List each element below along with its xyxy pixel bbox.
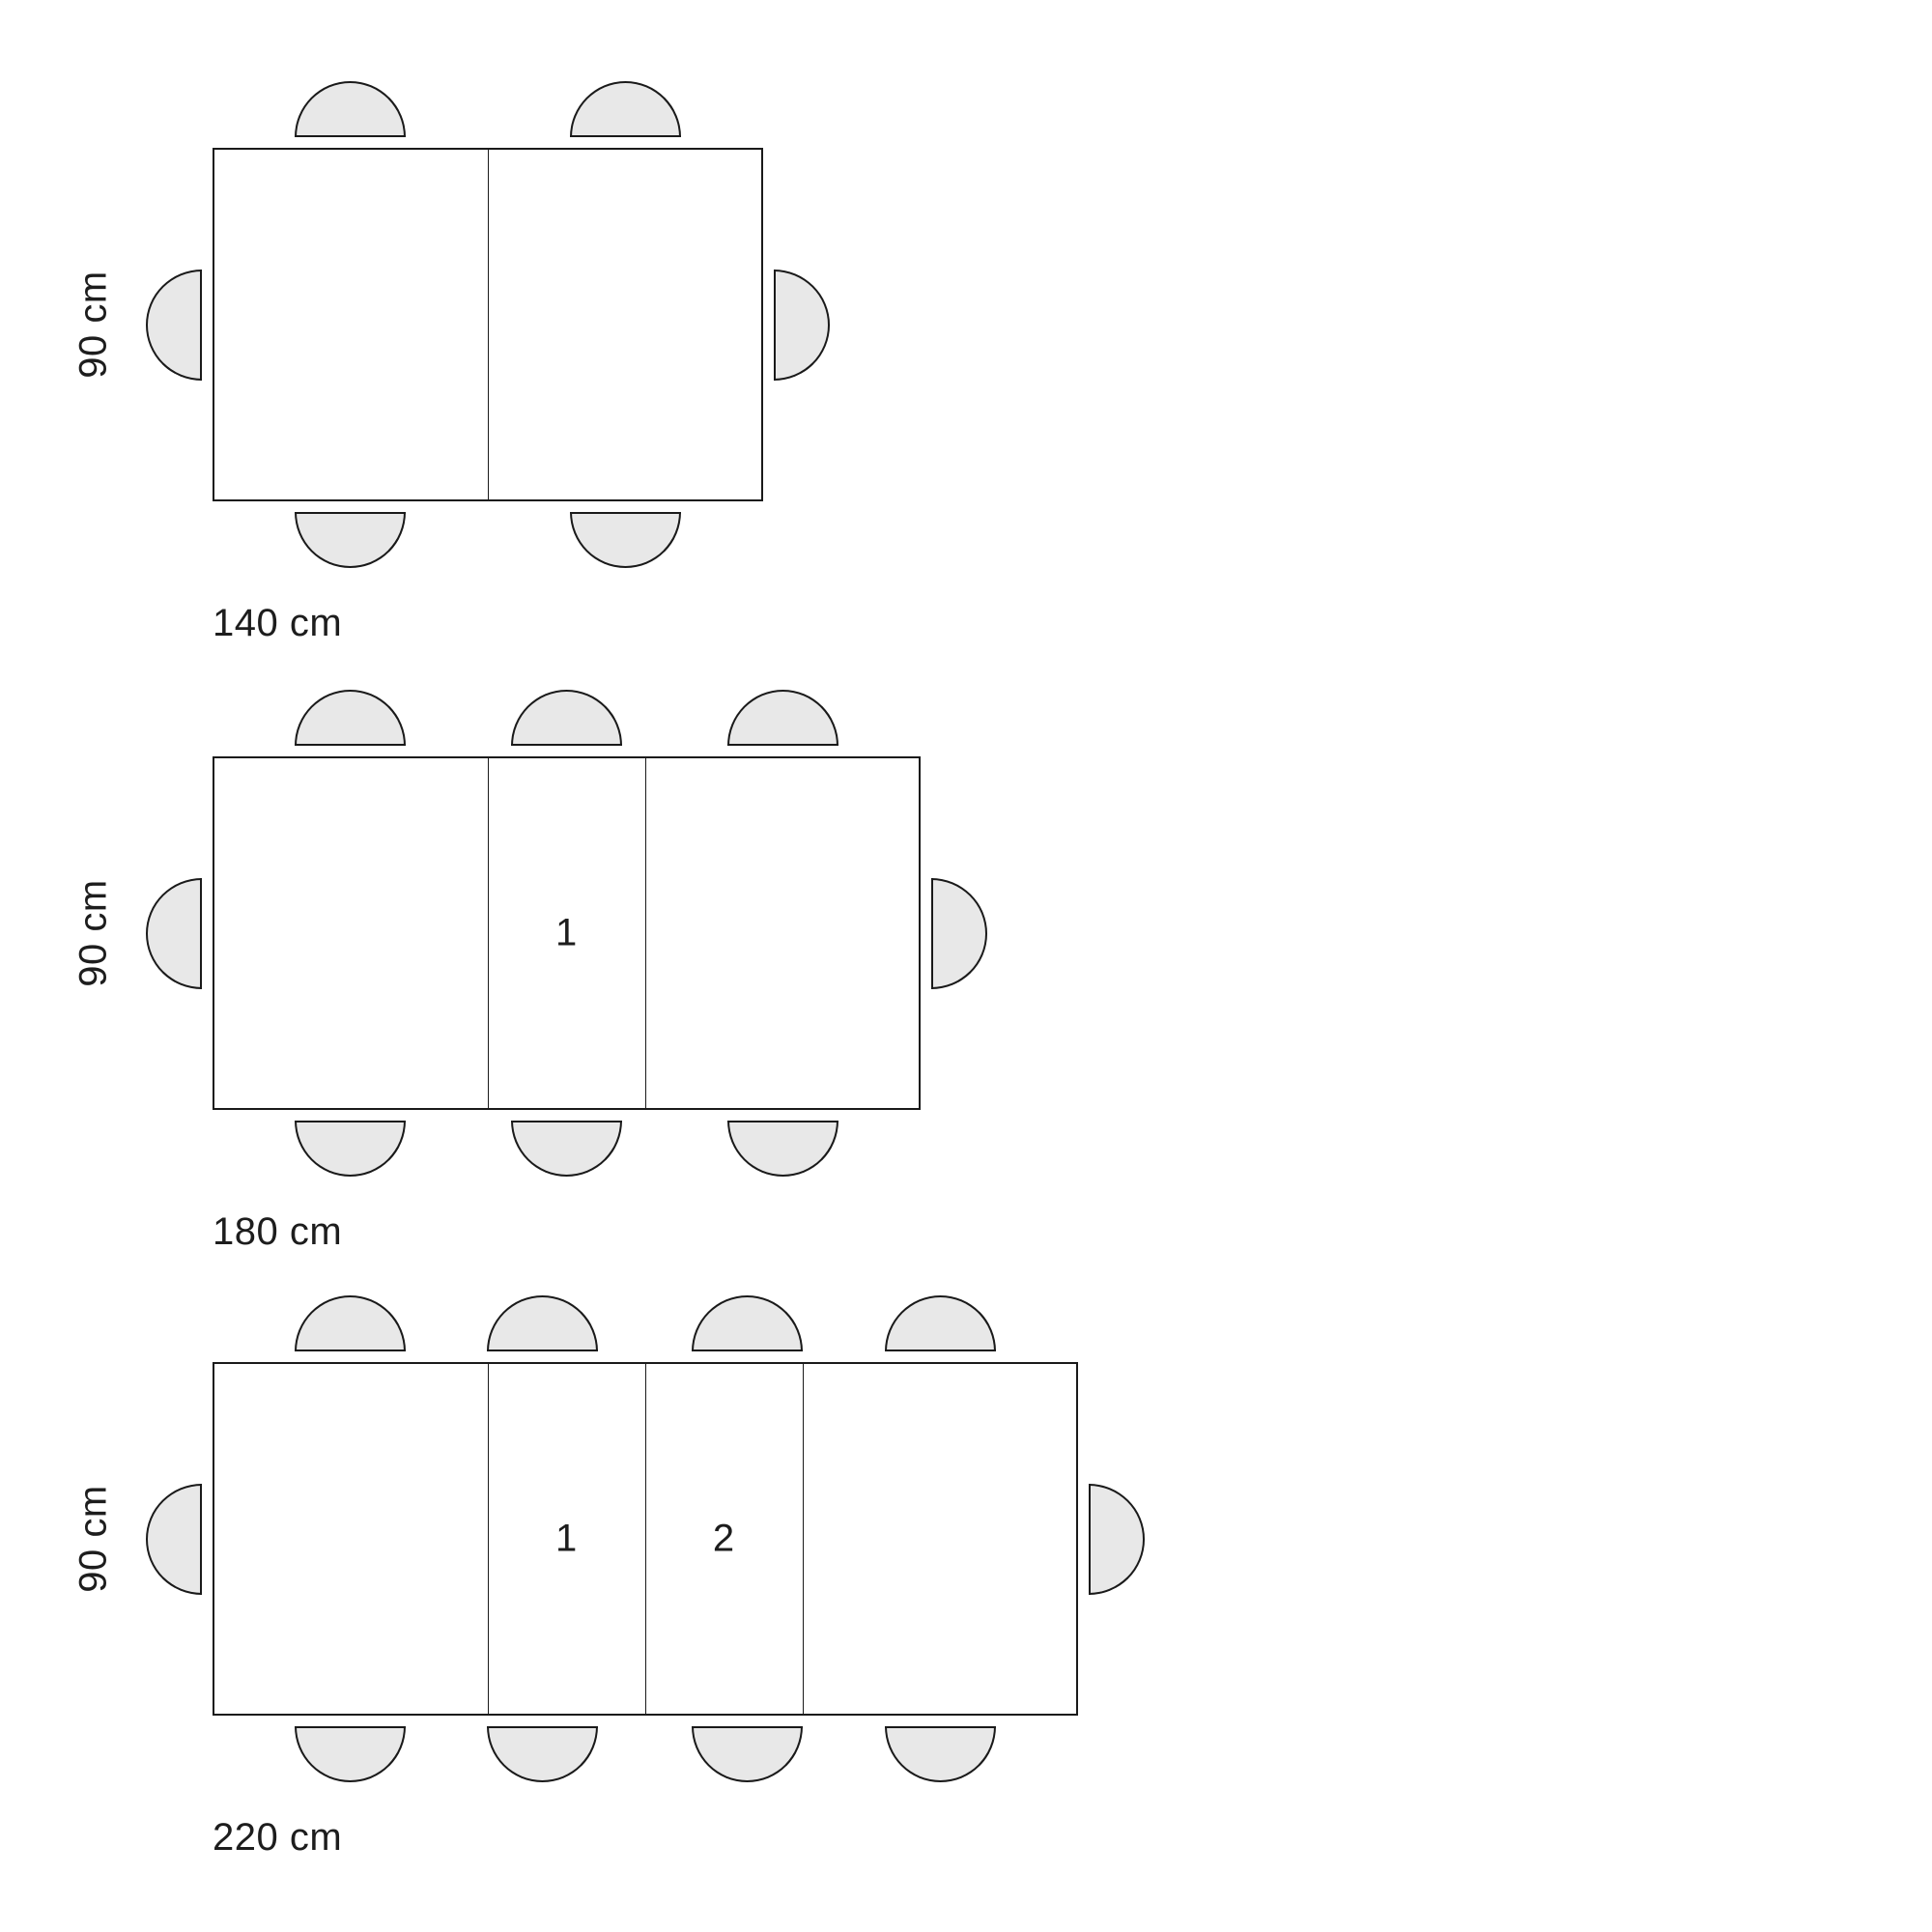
width-label-table-220cm: 220 cm <box>213 1816 342 1860</box>
chair-bottom <box>295 512 406 568</box>
leaf-divider <box>488 1364 490 1714</box>
chair-top <box>295 81 406 137</box>
chair-bottom <box>487 1726 598 1782</box>
leaf-divider <box>488 758 490 1108</box>
chair-top <box>885 1295 996 1351</box>
width-label-table-140cm: 140 cm <box>213 602 342 645</box>
chair-right <box>774 270 830 381</box>
chair-right <box>1089 1484 1145 1595</box>
chair-bottom <box>727 1121 838 1177</box>
depth-label-table-180cm: 90 cm <box>72 879 116 986</box>
chair-top <box>727 690 838 746</box>
chair-bottom <box>295 1726 406 1782</box>
chair-bottom <box>885 1726 996 1782</box>
chair-top <box>570 81 681 137</box>
leaf-divider <box>645 758 647 1108</box>
chair-left <box>146 270 202 381</box>
chair-top <box>511 690 622 746</box>
chair-bottom <box>295 1121 406 1177</box>
leaf-number-2: 2 <box>713 1518 735 1561</box>
chair-top <box>692 1295 803 1351</box>
leaf-divider <box>488 150 490 499</box>
leaf-number-1: 1 <box>555 1518 578 1561</box>
chair-top <box>295 1295 406 1351</box>
chair-bottom <box>511 1121 622 1177</box>
depth-label-table-140cm: 90 cm <box>72 270 116 378</box>
chair-bottom <box>692 1726 803 1782</box>
width-label-table-180cm: 180 cm <box>213 1210 342 1254</box>
chair-left <box>146 1484 202 1595</box>
diagram-canvas: 140 cm90 cm1180 cm90 cm12220 cm90 cm <box>0 0 1932 1932</box>
leaf-number-1: 1 <box>555 912 578 955</box>
leaf-divider <box>645 1364 647 1714</box>
chair-top <box>487 1295 598 1351</box>
depth-label-table-220cm: 90 cm <box>72 1485 116 1592</box>
chair-right <box>931 878 987 989</box>
chair-top <box>295 690 406 746</box>
leaf-divider <box>803 1364 805 1714</box>
chair-left <box>146 878 202 989</box>
chair-bottom <box>570 512 681 568</box>
